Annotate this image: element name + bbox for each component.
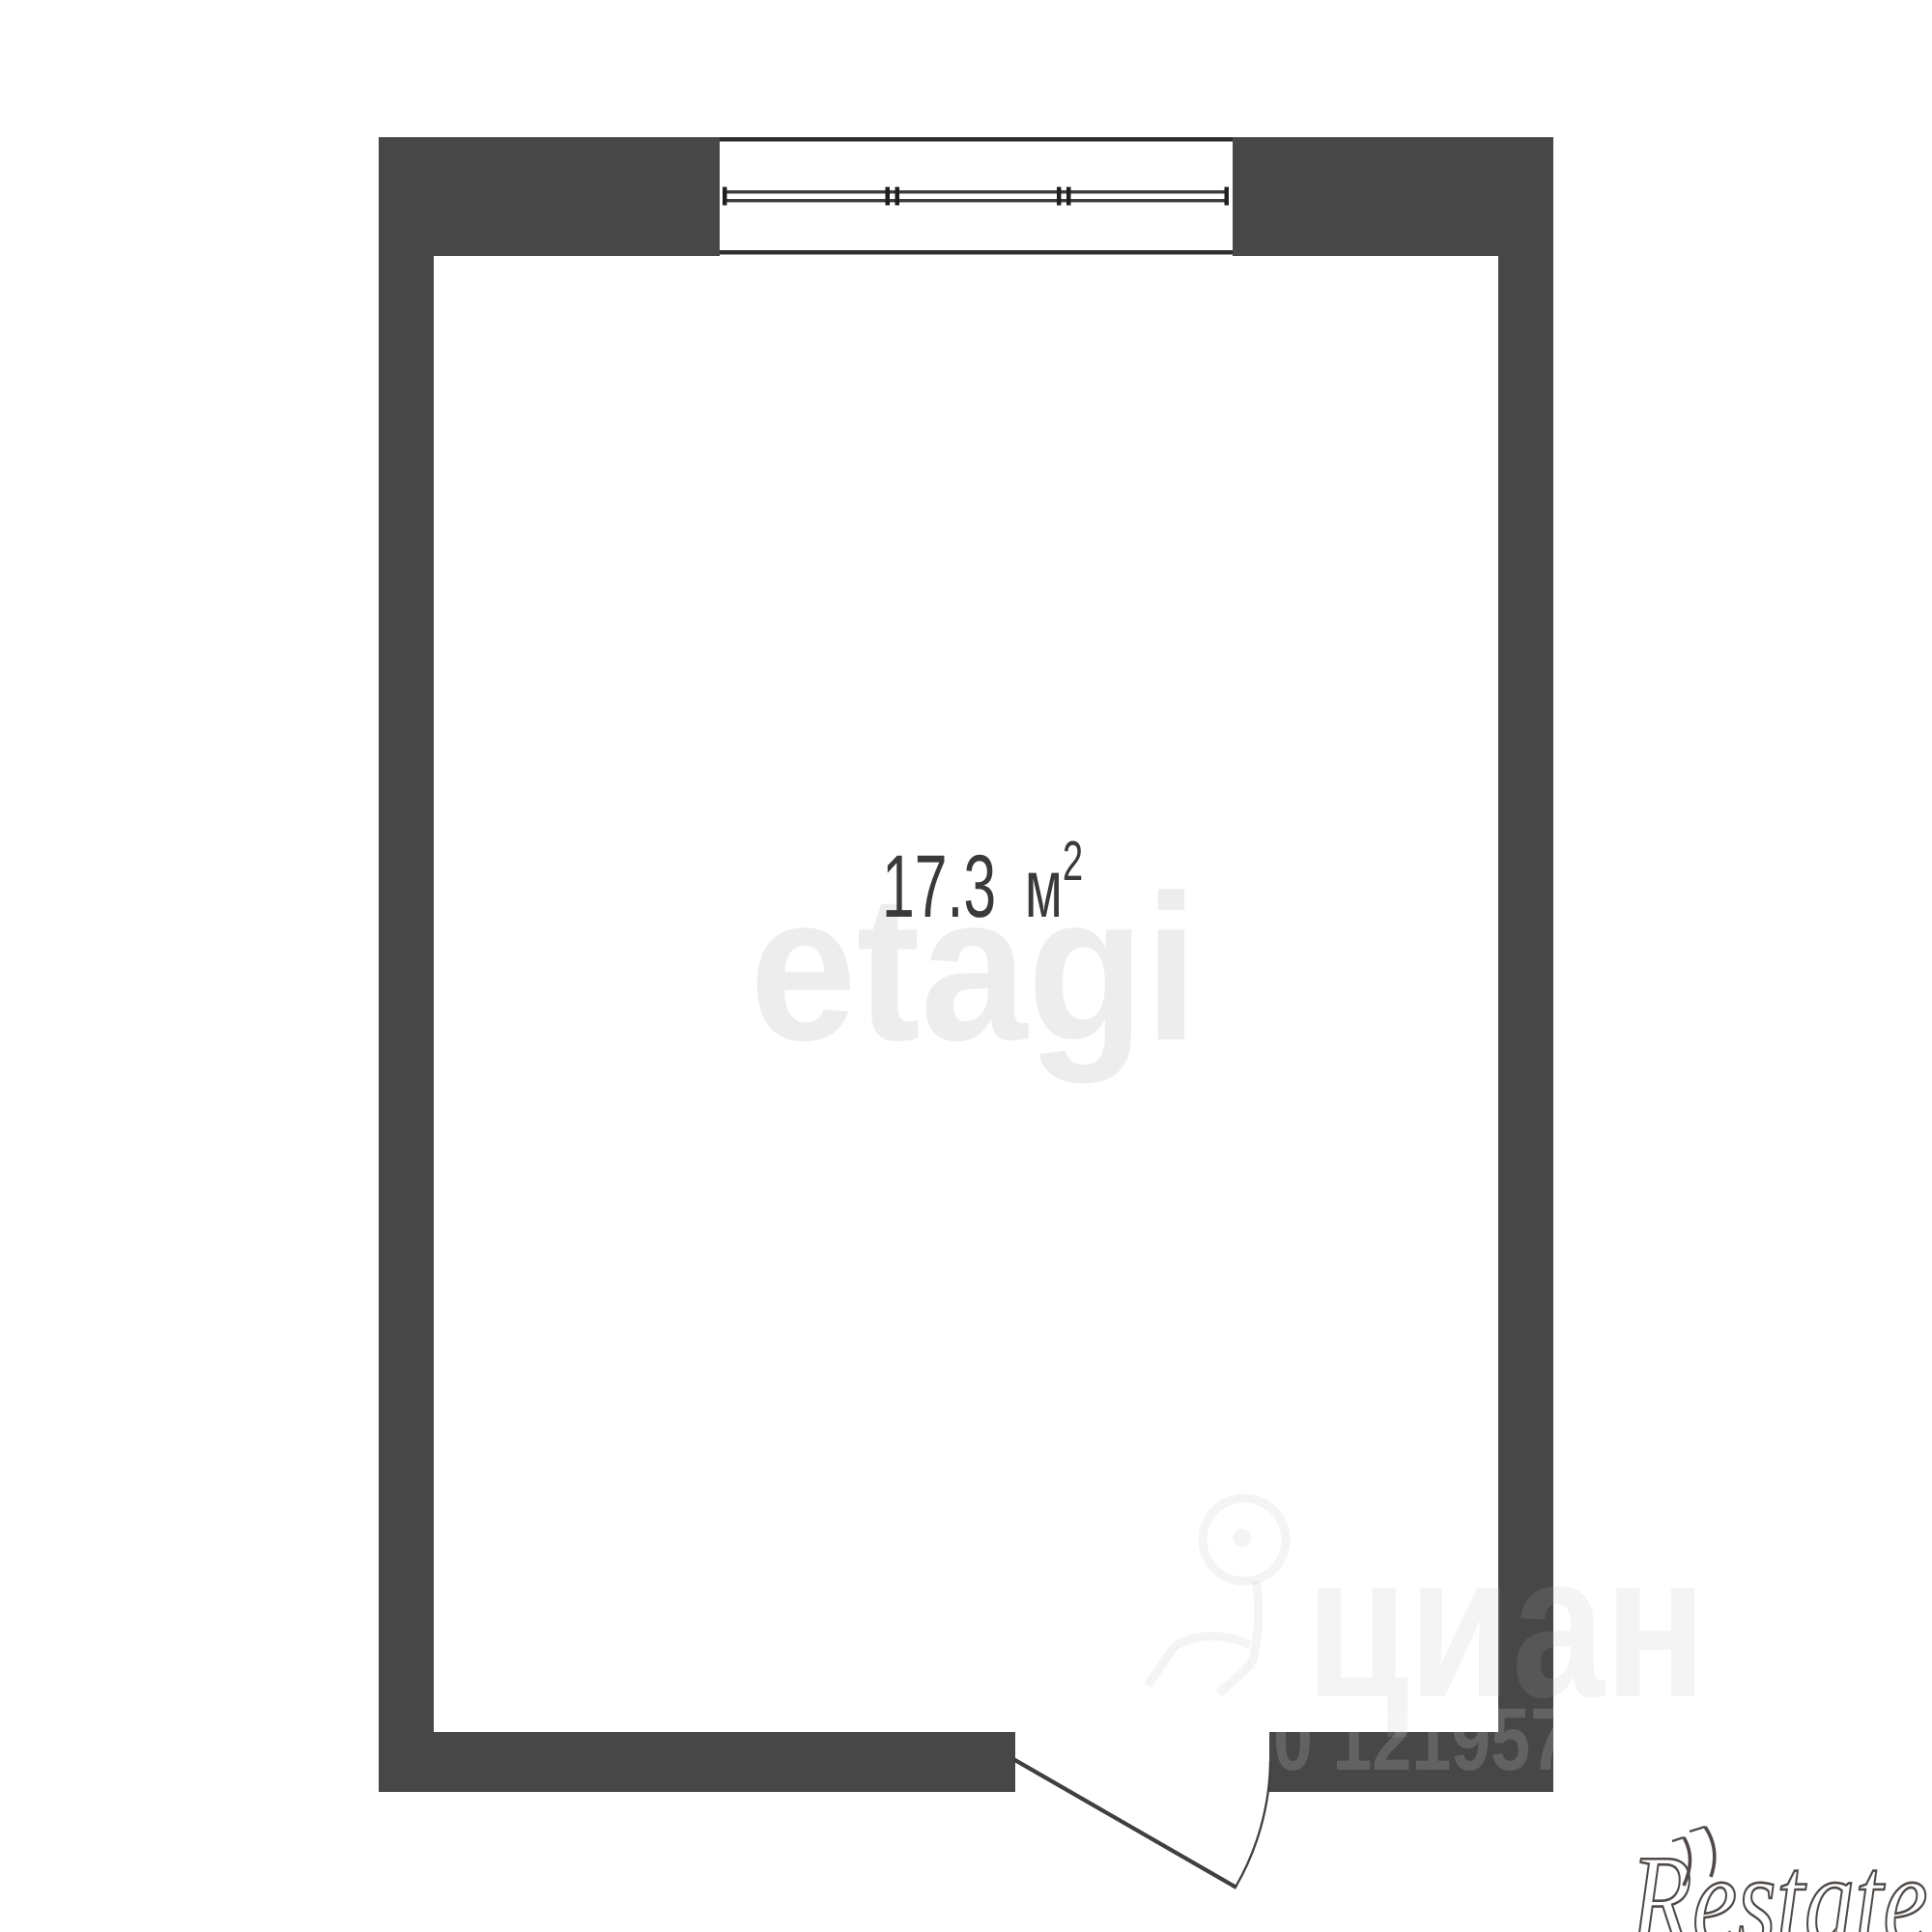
svg-text:Restate: Restate bbox=[1630, 1829, 1927, 1932]
svg-text:0 121957: 0 121957 bbox=[1273, 1690, 1570, 1789]
svg-text:17.3м2: 17.3м2 bbox=[882, 830, 1083, 936]
